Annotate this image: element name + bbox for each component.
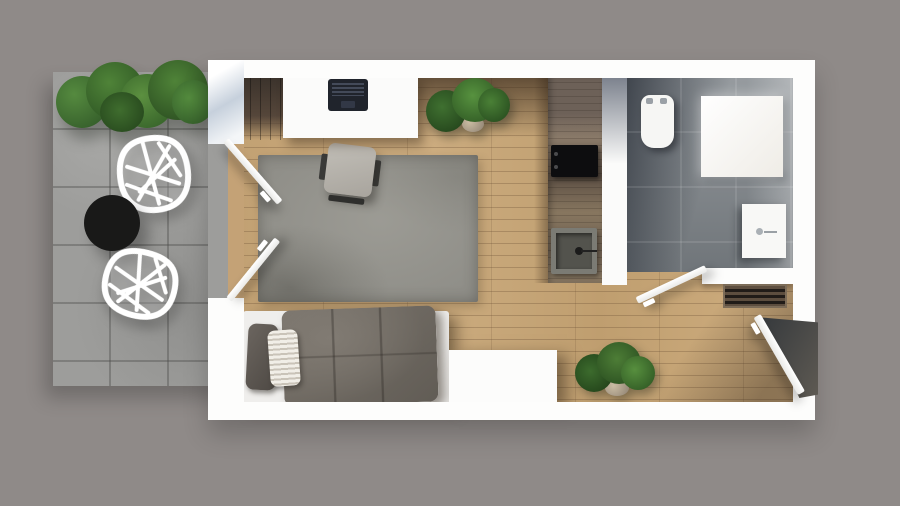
door-opening-threshold (208, 142, 230, 298)
wall-left-upper (208, 60, 244, 144)
duvet (281, 305, 438, 406)
laptop (328, 79, 368, 111)
divider-wall (602, 76, 627, 285)
sideboard (449, 350, 557, 404)
toilet (641, 95, 674, 148)
bathroom-south-wall (702, 268, 793, 284)
wall-bottom (208, 402, 815, 420)
kitchen-sink (551, 228, 597, 274)
counter-shadow (534, 76, 548, 283)
wall-right (793, 60, 815, 318)
floor-plan-render (0, 0, 900, 506)
hallway-plant (573, 340, 655, 400)
hedge-plant (56, 58, 214, 136)
office-chair (319, 138, 382, 202)
shower (701, 96, 783, 177)
pillow-knit (267, 329, 301, 387)
cooktop (551, 145, 598, 177)
bathroom-sink (742, 204, 786, 258)
radiator (723, 284, 787, 308)
dark-floor-corner (241, 76, 285, 140)
desk-plants (426, 78, 510, 140)
door-opening-wood (228, 142, 244, 298)
wall-top (208, 60, 815, 78)
